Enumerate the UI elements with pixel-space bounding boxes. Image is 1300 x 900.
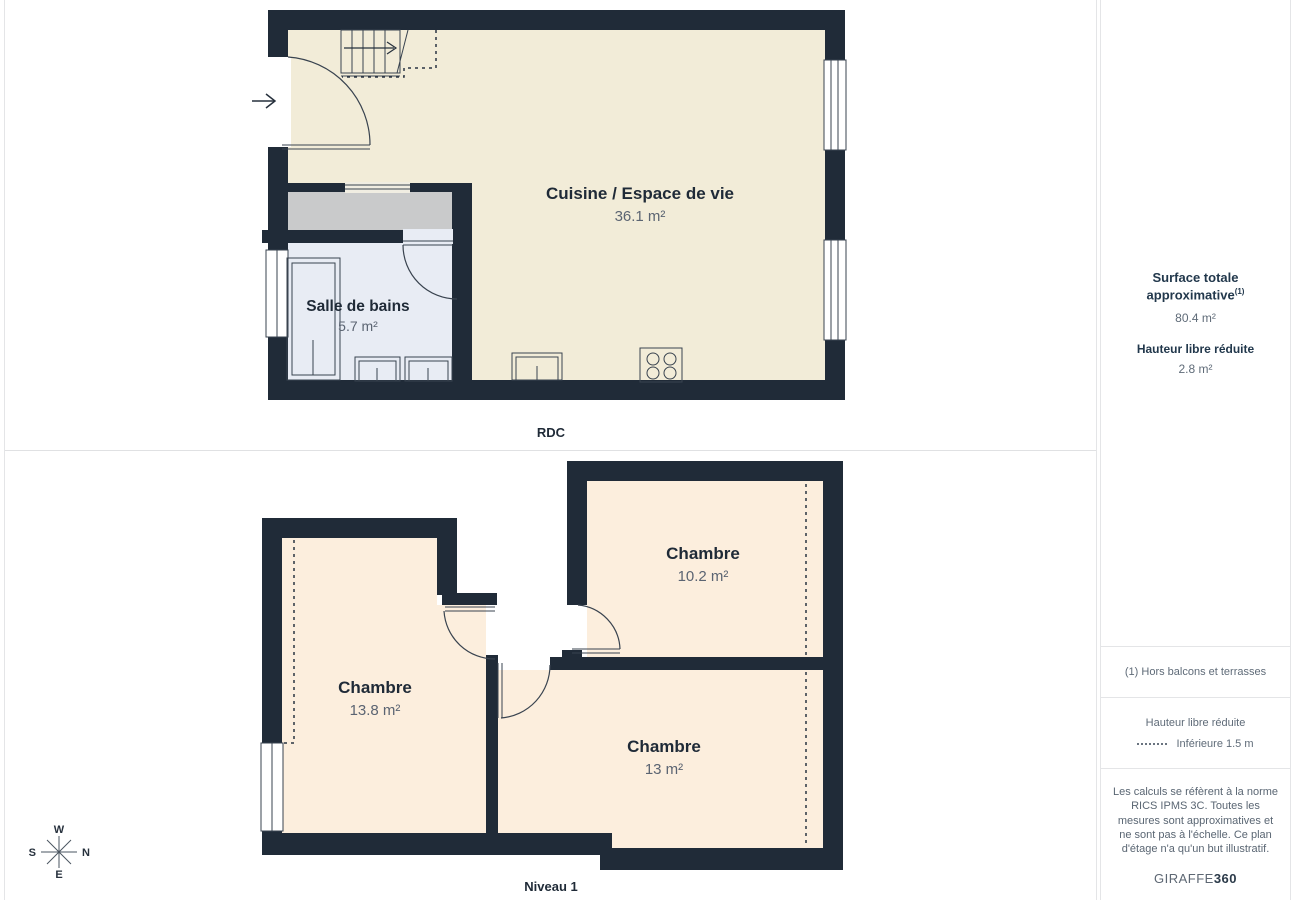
bathroom-door-opening <box>403 229 453 244</box>
floorplan-viewer: Cuisine / Espace de vie 36.1 m² Salle de… <box>0 0 1300 900</box>
dashed-line-swatch <box>1137 743 1167 745</box>
window <box>266 250 288 337</box>
window <box>824 240 846 340</box>
footnote-text: (1) Hors balcons et terrasses <box>1125 666 1266 678</box>
window <box>824 60 846 150</box>
surface-total-title: Surface totale approximative(1) <box>1111 270 1280 304</box>
room-area-chambre-3: 13 m² <box>645 761 683 778</box>
floor-label-niveau1: Niveau 1 <box>524 879 577 894</box>
surface-summary-section: Surface totale approximative(1) 80.4 m² … <box>1101 0 1290 646</box>
floor-label-rdc: RDC <box>537 425 566 440</box>
rdc-floorplan: Cuisine / Espace de vie 36.1 m² Salle de… <box>0 0 1100 450</box>
disclaimer-text: Les calculs se réfèrent à la norme RICS … <box>1112 785 1279 856</box>
closet-door <box>345 182 410 193</box>
legend-title: Hauteur libre réduite <box>1146 717 1246 729</box>
room-area-salle-de-bains: 5.7 m² <box>338 318 378 334</box>
room-area-chambre-1: 10.2 m² <box>678 568 729 585</box>
room-area-chambre-2: 13.8 m² <box>350 702 401 719</box>
legend-label: Inférieure 1.5 m <box>1176 738 1253 750</box>
closet-under-stairs <box>283 190 455 232</box>
compass-e: E <box>55 869 62 881</box>
room-area-cuisine: 36.1 m² <box>615 208 666 225</box>
compass-rose-icon: W N S E <box>29 824 90 881</box>
entrance-opening <box>265 57 291 147</box>
disclaimer-section: Les calculs se réfèrent à la norme RICS … <box>1101 769 1290 888</box>
room-label-chambre-2: Chambre <box>338 678 412 697</box>
room-label-chambre-1: Chambre <box>666 544 740 563</box>
compass-s: S <box>29 847 36 859</box>
brand-logo: GIRAFFE360 <box>1112 871 1279 888</box>
reduced-height-value: 2.8 m² <box>1178 362 1212 376</box>
window <box>261 743 283 831</box>
compass-w: W <box>54 824 65 836</box>
niveau1-floorplan: Chambre 10.2 m² Chambre 13.8 m² Chambre … <box>0 450 1100 900</box>
reduced-height-title: Hauteur libre réduite <box>1137 342 1254 356</box>
room-chambre-2b <box>437 605 486 835</box>
legend-section: Hauteur libre réduite Inférieure 1.5 m <box>1101 698 1290 769</box>
room-chambre-3 <box>498 670 823 850</box>
room-label-salle-de-bains: Salle de bains <box>306 298 409 315</box>
compass-n: N <box>82 847 90 859</box>
room-label-cuisine: Cuisine / Espace de vie <box>546 184 734 203</box>
surface-total-value: 80.4 m² <box>1175 311 1216 325</box>
room-label-chambre-3: Chambre <box>627 737 701 756</box>
footnote-marker: (1) <box>1235 287 1245 296</box>
info-sidebar: Surface totale approximative(1) 80.4 m² … <box>1100 0 1291 900</box>
footnote-section: (1) Hors balcons et terrasses <box>1101 646 1290 698</box>
